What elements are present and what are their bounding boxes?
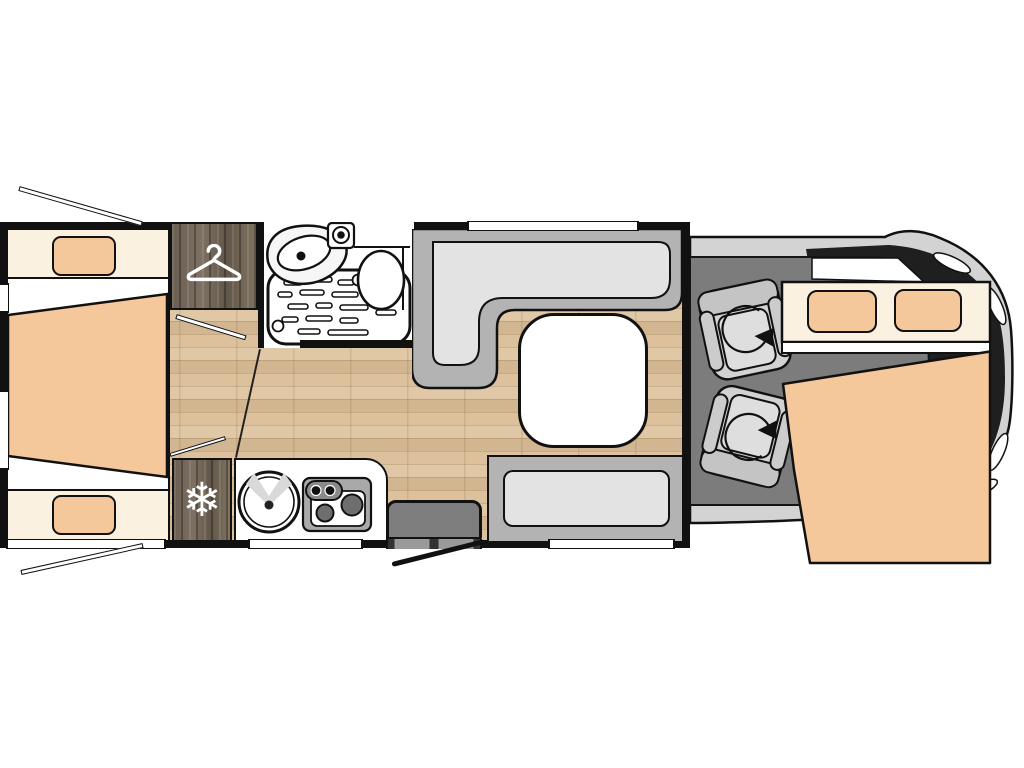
b-pillar-top	[682, 222, 690, 302]
entry-step	[386, 500, 482, 540]
window-rear-upper	[0, 283, 9, 313]
bathroom-bottom-wall	[300, 340, 420, 348]
dinette-table	[518, 313, 648, 448]
fridge: ❄	[172, 458, 232, 542]
rear-bed-top-pillow	[52, 236, 116, 276]
cab-section	[688, 208, 1024, 576]
overcab-bed	[782, 282, 990, 563]
rear-bed-bottom-pillow	[52, 495, 116, 535]
bathroom-fixtures	[264, 222, 414, 348]
burner-large	[342, 495, 363, 516]
drain-hole	[273, 321, 284, 332]
overcab-duvet	[783, 352, 990, 564]
floorplan-canvas: ❄	[0, 0, 1024, 768]
kitchen-counter	[234, 458, 388, 542]
toilet	[358, 251, 404, 309]
sink-drain	[265, 501, 274, 510]
hob-knob	[325, 486, 335, 496]
hanger-icon	[172, 224, 256, 308]
bathroom	[258, 222, 420, 348]
wardrobe	[170, 222, 258, 310]
window-top-dinette	[467, 221, 639, 231]
window-bottom-dinette	[548, 539, 675, 549]
hob-knob	[311, 486, 321, 496]
overcab-pillow-left	[808, 291, 876, 332]
snowflake-icon: ❄	[174, 460, 230, 540]
window-bottom-kitchen	[248, 539, 363, 549]
kitchen-fixtures	[236, 460, 385, 539]
window-rear-lower	[0, 390, 9, 470]
open-window-flap-top	[18, 186, 142, 226]
rear-bed-mattress	[8, 290, 170, 480]
burner-small	[317, 505, 334, 522]
basin-drain	[297, 252, 306, 261]
overcab-pillow-right	[895, 290, 961, 331]
overcab-bed-sheet	[782, 342, 990, 353]
front-bench-cushion	[503, 470, 670, 527]
b-pillar-bottom	[682, 452, 690, 548]
